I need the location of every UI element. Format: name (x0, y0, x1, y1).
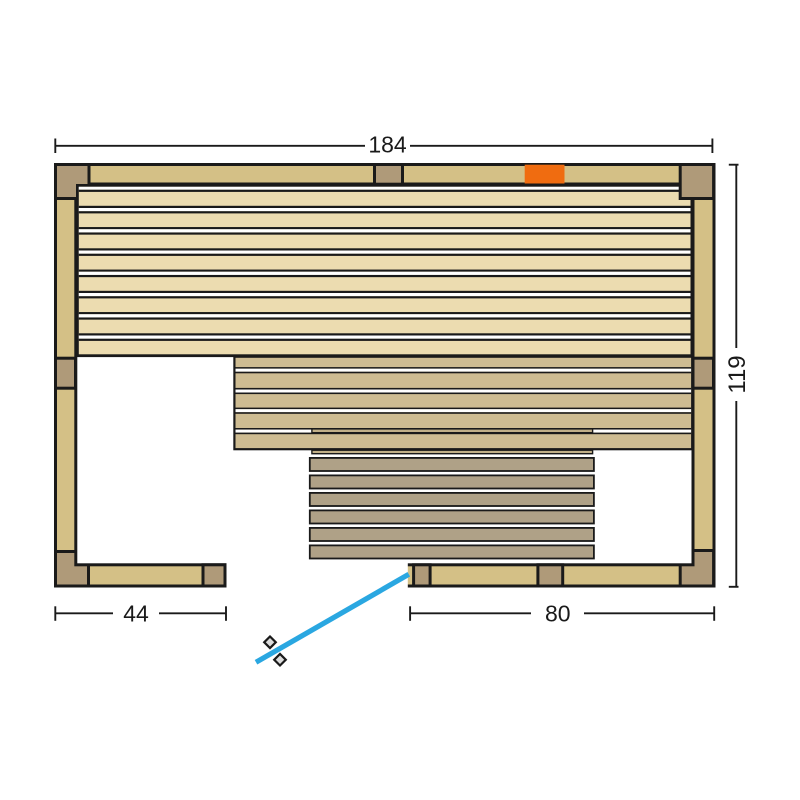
svg-text:80: 80 (545, 600, 571, 626)
svg-text:119: 119 (724, 355, 751, 393)
svg-text:184: 184 (368, 132, 407, 158)
svg-text:44: 44 (123, 600, 149, 626)
